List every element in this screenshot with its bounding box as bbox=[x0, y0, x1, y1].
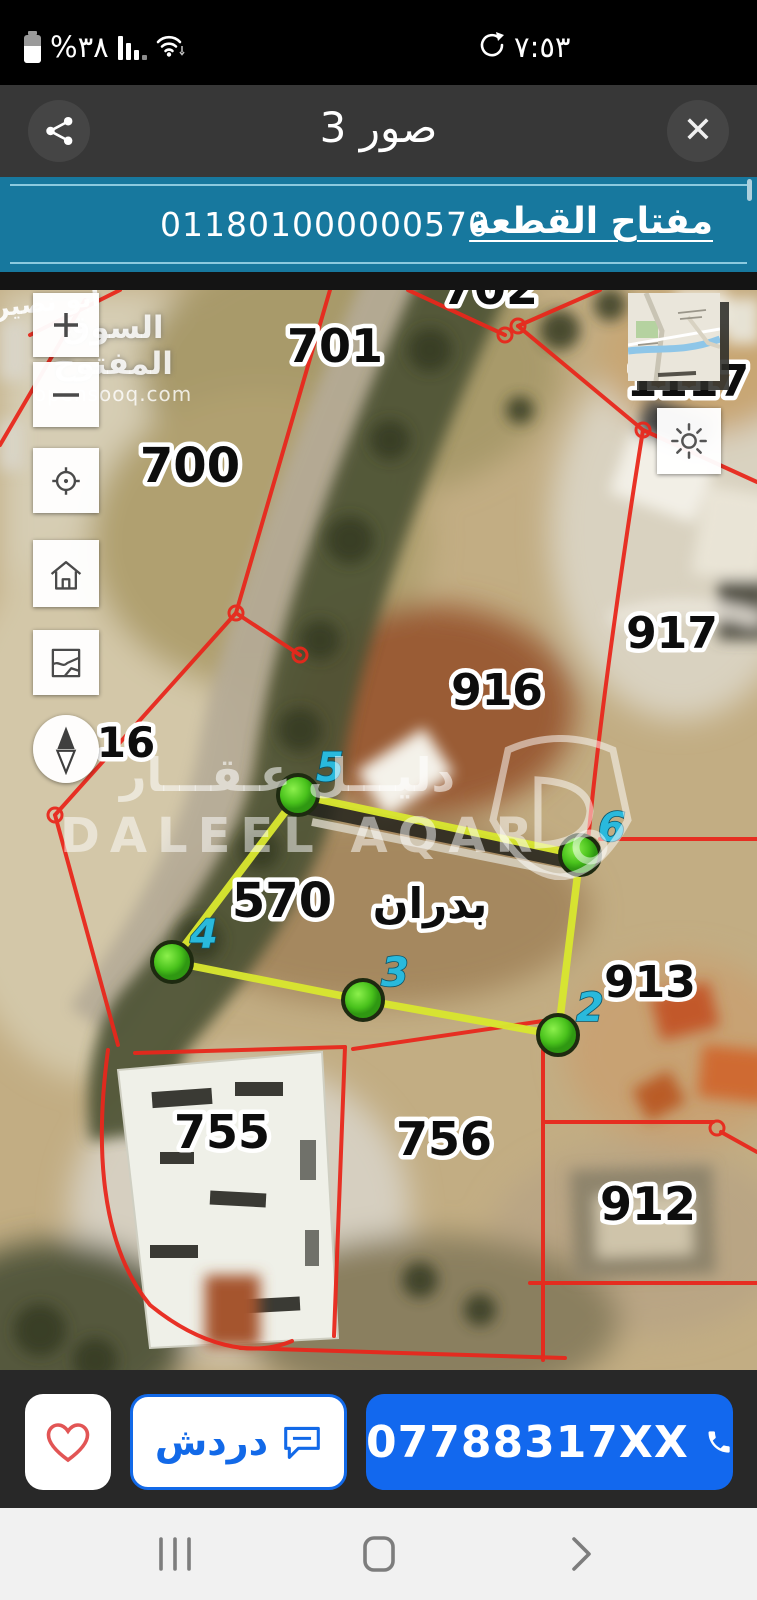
plot-key-bar: 011801000000570 مفتاح القطعة bbox=[0, 177, 757, 272]
home-nav-icon bbox=[362, 1535, 396, 1573]
parcel-label-913: 913 bbox=[604, 957, 696, 1008]
status-left-group: %٣٨ bbox=[24, 30, 186, 64]
close-icon: ✕ bbox=[683, 113, 713, 149]
recents-icon bbox=[155, 1537, 195, 1571]
minimap-inset[interactable] bbox=[628, 293, 720, 381]
parcel-label-702: 702 bbox=[442, 290, 538, 315]
chat-bubble-icon bbox=[282, 1423, 322, 1461]
parcel-label-916: 916 bbox=[451, 665, 543, 716]
crosshair-icon bbox=[44, 459, 88, 503]
satellite-map[interactable]: 56234 702701700111791791616570بدران91375… bbox=[0, 290, 757, 1370]
plot-vertex-label-5: 5 bbox=[316, 745, 344, 791]
parcel-label-570: 570 bbox=[232, 873, 332, 929]
parcel-label-16: 16 bbox=[97, 718, 155, 767]
parcel-label-912: 912 bbox=[600, 1177, 696, 1231]
home-button[interactable] bbox=[33, 540, 99, 607]
zoom-out-button[interactable] bbox=[33, 362, 99, 427]
plot-key-label: مفتاح القطعة bbox=[469, 201, 713, 242]
plot-vertex-3 bbox=[343, 980, 383, 1020]
parcel-label-756: 756 bbox=[396, 1112, 492, 1166]
page-title: 3 صور bbox=[0, 103, 757, 152]
cellular-signal-icon bbox=[118, 34, 147, 60]
home-icon bbox=[45, 554, 87, 594]
plot-vertex-2 bbox=[538, 1015, 578, 1055]
parcel-label-755: 755 bbox=[174, 1105, 270, 1159]
android-nav-bar bbox=[0, 1508, 757, 1600]
sun-icon bbox=[669, 421, 709, 461]
map-canvas: 56234 702701700111791791616570بدران91375… bbox=[0, 290, 757, 1370]
wifi-icon bbox=[156, 32, 186, 62]
locate-button[interactable] bbox=[33, 448, 99, 513]
plot-vertex-label-2: 2 bbox=[576, 985, 604, 1031]
battery-percent: %٣٨ bbox=[50, 30, 109, 64]
status-bar: %٣٨ ٧:٥٣ bbox=[0, 0, 757, 85]
status-right-group: ٧:٥٣ bbox=[478, 30, 571, 64]
heart-icon bbox=[44, 1420, 92, 1464]
phone-number: 07788317XX bbox=[366, 1417, 689, 1468]
compass-needle-icon bbox=[46, 723, 86, 775]
plot-vertex-label-4: 4 bbox=[189, 912, 218, 958]
parcel-label-701: 701 bbox=[287, 319, 383, 373]
recents-button[interactable] bbox=[140, 1519, 210, 1589]
close-button[interactable]: ✕ bbox=[667, 100, 729, 162]
image-viewer-header: 3 صور ✕ bbox=[0, 85, 757, 177]
plot-vertex-label-6: 6 bbox=[598, 805, 626, 851]
parcel-label-badran: بدران bbox=[373, 879, 487, 928]
compass-button[interactable] bbox=[33, 715, 99, 783]
map-icon bbox=[45, 642, 87, 684]
plot-key-value: 011801000000570 bbox=[160, 205, 490, 244]
plot-vertex-4 bbox=[152, 942, 192, 982]
chat-button[interactable]: دردش bbox=[130, 1394, 347, 1490]
battery-icon bbox=[24, 31, 41, 63]
plot-vertex-6 bbox=[560, 835, 600, 875]
back-button[interactable] bbox=[547, 1519, 617, 1589]
plot-vertex-5 bbox=[278, 775, 318, 815]
scroll-indicator bbox=[747, 179, 752, 201]
separator bbox=[0, 272, 757, 290]
zoom-in-button[interactable] bbox=[33, 293, 99, 357]
call-button[interactable]: 07788317XX bbox=[366, 1394, 733, 1490]
sync-icon bbox=[478, 31, 506, 63]
clock: ٧:٥٣ bbox=[514, 30, 571, 64]
parcel-label-917: 917 bbox=[626, 608, 718, 659]
plus-icon bbox=[51, 310, 81, 340]
layers-button[interactable] bbox=[33, 630, 99, 695]
minus-icon bbox=[51, 391, 81, 399]
favorite-button[interactable] bbox=[25, 1394, 111, 1490]
brightness-button[interactable] bbox=[657, 408, 721, 474]
plot-vertex-label-3: 3 bbox=[381, 950, 409, 996]
chat-label: دردش bbox=[155, 1420, 268, 1464]
phone-icon bbox=[705, 1423, 733, 1461]
parcel-label-700: 700 bbox=[140, 438, 240, 494]
minimap-canvas bbox=[628, 293, 720, 381]
back-chevron-icon bbox=[571, 1536, 593, 1572]
home-nav-button[interactable] bbox=[344, 1519, 414, 1589]
action-bar: دردش 07788317XX bbox=[0, 1370, 757, 1508]
